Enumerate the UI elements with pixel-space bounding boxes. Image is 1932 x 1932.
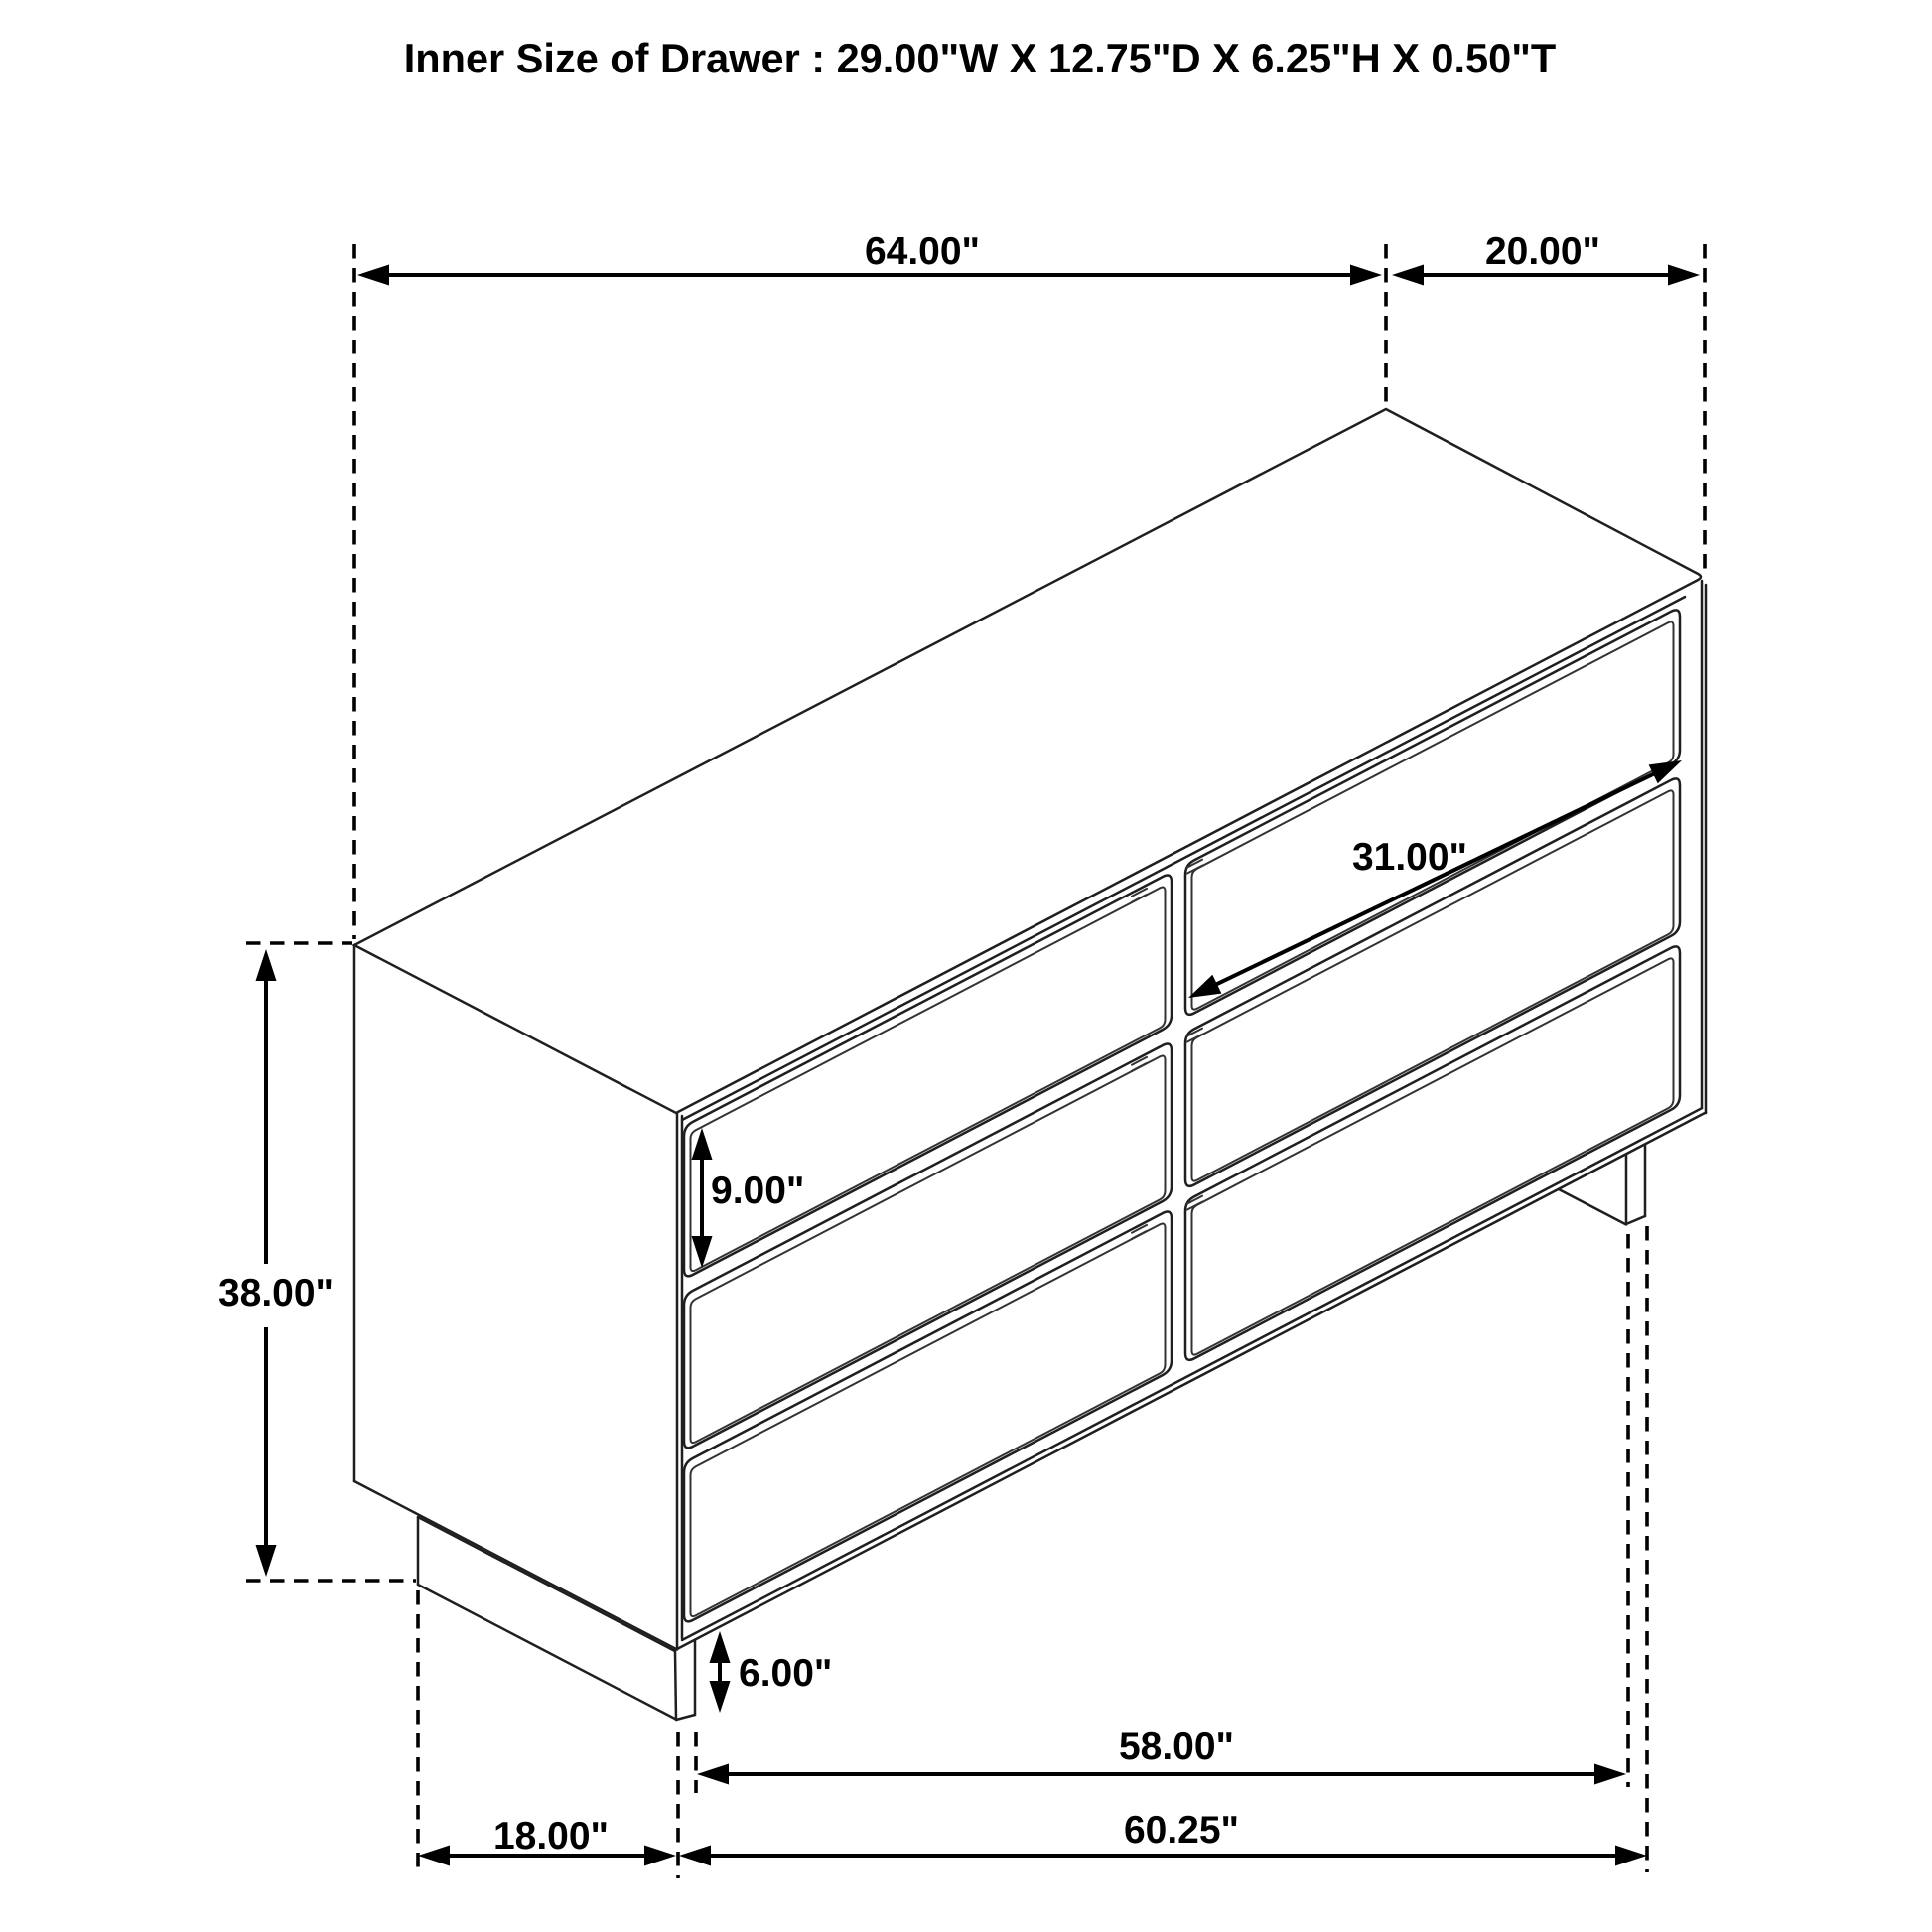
svg-text:9.00": 9.00" bbox=[711, 1170, 804, 1212]
svg-text:64.00": 64.00" bbox=[865, 230, 980, 273]
svg-text:31.00": 31.00" bbox=[1352, 836, 1467, 879]
svg-text:58.00": 58.00" bbox=[1119, 1725, 1234, 1768]
svg-text:Inner Size of Drawer : 29.00"W: Inner Size of Drawer : 29.00"W X 12.75"D… bbox=[404, 35, 1556, 81]
svg-text:18.00": 18.00" bbox=[493, 1815, 609, 1858]
svg-text:6.00": 6.00" bbox=[739, 1652, 832, 1695]
svg-text:60.25": 60.25" bbox=[1124, 1809, 1239, 1852]
svg-text:20.00": 20.00" bbox=[1485, 230, 1600, 273]
svg-text:38.00": 38.00" bbox=[218, 1272, 334, 1314]
